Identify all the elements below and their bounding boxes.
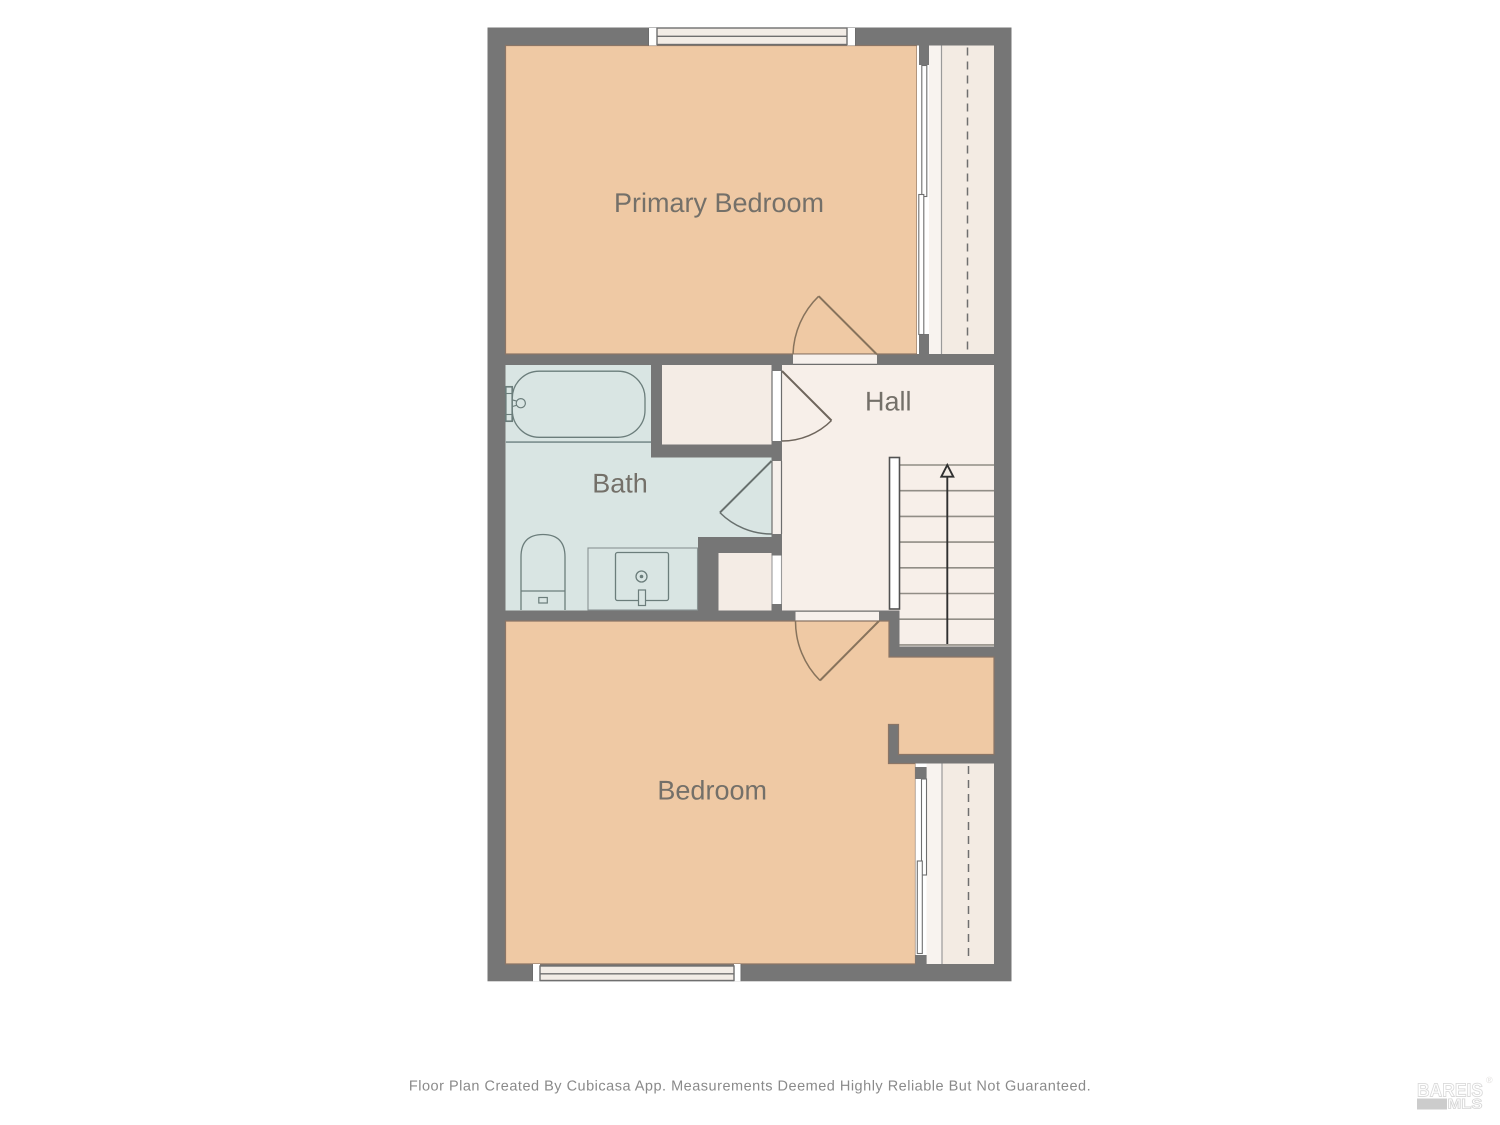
svg-text:Primary Bedroom: Primary Bedroom xyxy=(614,188,824,218)
svg-text:Bath: Bath xyxy=(592,469,648,499)
svg-text:Hall: Hall xyxy=(865,387,912,417)
svg-text:®: ® xyxy=(1486,1075,1493,1085)
svg-text:Bedroom: Bedroom xyxy=(657,776,767,806)
svg-text:MLS: MLS xyxy=(1448,1096,1483,1112)
svg-text:Floor Plan Created By Cubicasa: Floor Plan Created By Cubicasa App. Meas… xyxy=(409,1079,1091,1095)
